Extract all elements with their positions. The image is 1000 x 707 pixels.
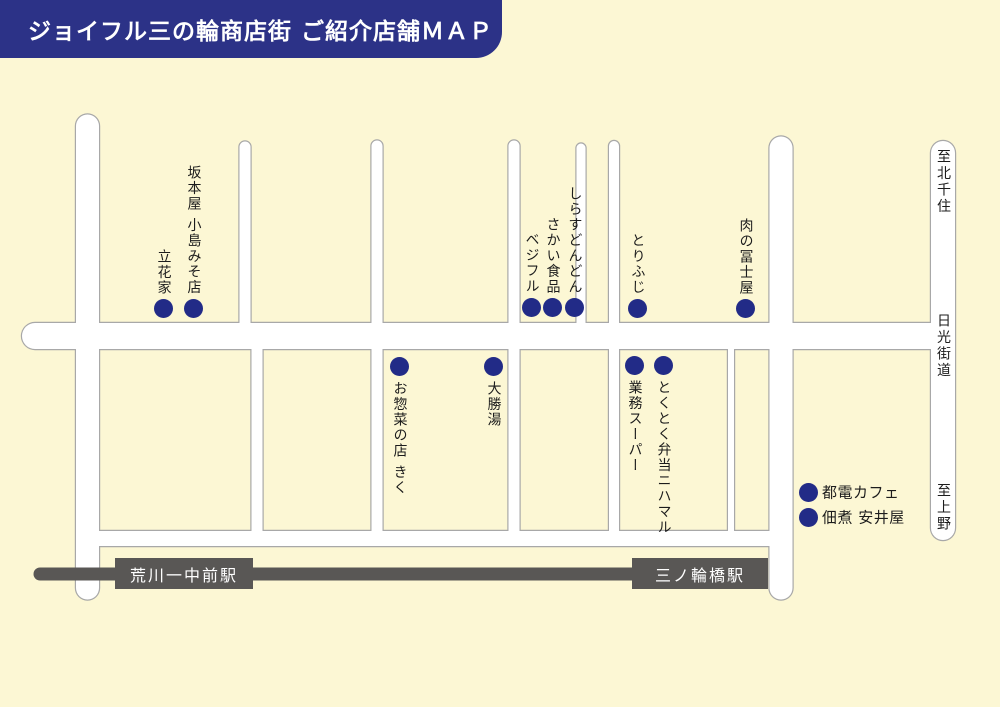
map-title: ジョイフル三の輪商店街 ご紹介店舗ＭＡＰ (28, 12, 493, 46)
map-title-badge: ジョイフル三の輪商店街 ご紹介店舗ＭＡＰ (0, 0, 502, 58)
road-label-nikko-kaido: 日光街道 (936, 313, 950, 379)
store-dot (390, 357, 409, 376)
station-arakawa-itchumae: 荒川一中前駅 (115, 558, 253, 589)
store-dot (799, 483, 818, 502)
store-label: 立花家 (155, 249, 170, 296)
station-label: 荒川一中前駅 (130, 562, 238, 586)
road-label-to-ueno: 至上野 (936, 483, 950, 533)
store-label: 坂本屋 小島みそ店 (185, 165, 200, 295)
store-dot (565, 298, 584, 317)
street-map-graphic (0, 0, 1000, 707)
store-dot (628, 299, 647, 318)
store-label: しらすどんどん (566, 186, 581, 295)
store-label: 都電カフェ (822, 482, 900, 503)
store-dot (484, 357, 503, 376)
store-dot (522, 298, 541, 317)
shopping-street-map: ジョイフル三の輪商店街 ご紹介店舗ＭＡＰ 荒川一中前駅 三ノ輪橋駅 至北千住 日… (0, 0, 1000, 707)
store-dot (184, 299, 203, 318)
store-label: とくとく弁当ニハマル (655, 380, 670, 535)
store-dot (654, 356, 673, 375)
store-label: ベジフル (523, 232, 538, 294)
store-label: とりふじ (629, 233, 644, 295)
store-label: 佃煮 安井屋 (822, 507, 905, 528)
store-label: 肉の冨士屋 (737, 218, 752, 296)
store-dot (625, 356, 644, 375)
store-label: 大勝湯 (485, 381, 500, 428)
store-dot (799, 508, 818, 527)
store-dot (154, 299, 173, 318)
store-label: さかい食品 (544, 217, 559, 295)
road-label-to-kitasenju: 至北千住 (936, 149, 950, 215)
store-label: 業務スーパー (626, 380, 641, 473)
station-label: 三ノ輪橋駅 (655, 562, 745, 586)
store-dot (736, 299, 755, 318)
store-dot (543, 298, 562, 317)
station-minowabashi: 三ノ輪橋駅 (632, 558, 768, 589)
store-label: お惣菜の店 きく (391, 381, 406, 495)
